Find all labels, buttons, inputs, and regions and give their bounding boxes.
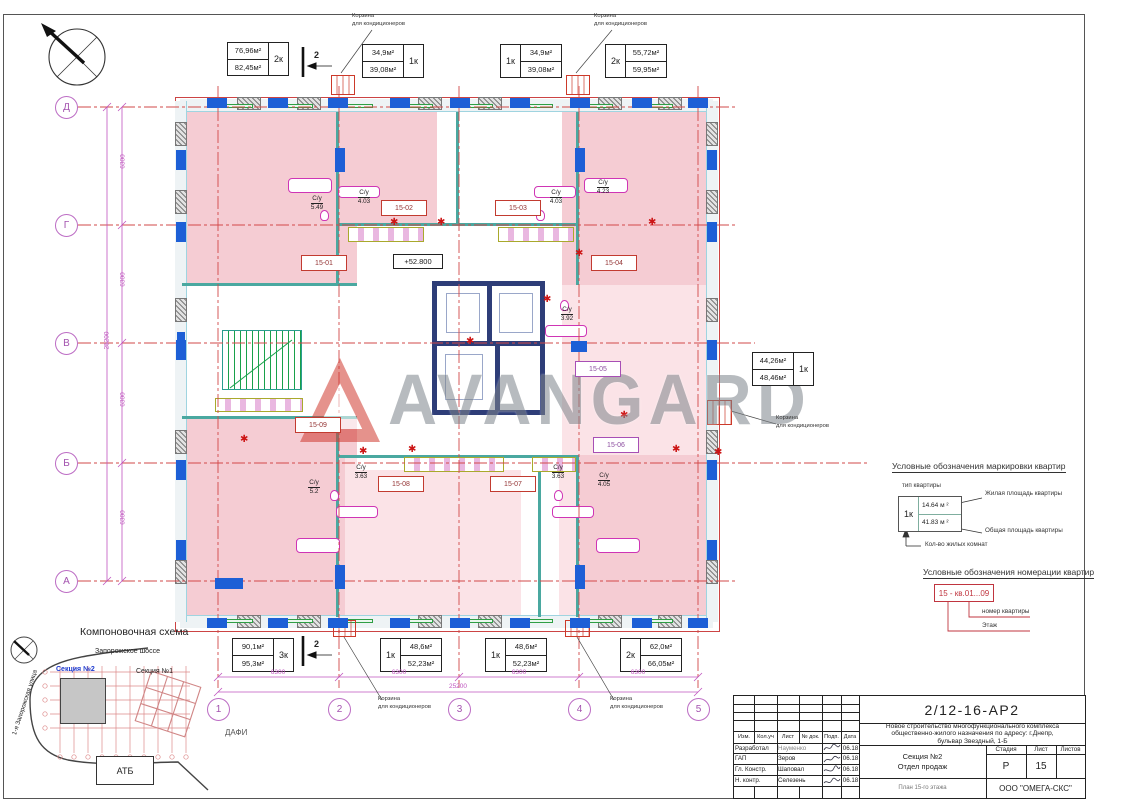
column: [570, 618, 590, 628]
apartment-number: 15-04: [591, 255, 637, 271]
bathtub: [296, 538, 340, 553]
party-wall: [456, 112, 459, 225]
apartment-number: 15-05: [575, 361, 621, 377]
tb-date: 06.18: [842, 743, 859, 753]
asterisk-mark: [672, 445, 680, 455]
ac-basket-label: Корзинадля кондиционеров: [776, 415, 829, 430]
legend-numbering-title: Условные обозначения номерации квартир: [923, 567, 1094, 579]
signature-icon: [823, 776, 841, 786]
party-wall: [576, 112, 579, 285]
column: [177, 332, 185, 354]
column: [268, 98, 288, 108]
area-tag: 48,6м²52,23м² 1к: [485, 638, 547, 672]
window-sill: [225, 104, 253, 108]
toilet: [320, 210, 329, 221]
tb-name: Зеров: [778, 753, 821, 764]
column: [575, 565, 585, 589]
axis-bubble-row: А: [55, 570, 78, 593]
wall-pier: [706, 560, 718, 584]
column: [176, 540, 186, 560]
bathroom-tag: С/у5.2: [300, 479, 328, 495]
apartment-number: 15-06: [593, 437, 639, 453]
column: [688, 618, 708, 628]
asterisk-mark: [575, 249, 583, 259]
column: [707, 540, 717, 560]
dimension: 6300: [502, 669, 536, 676]
tb-stage-value: Р: [986, 754, 1026, 778]
column: [328, 618, 348, 628]
axis-bubble-row: Д: [55, 96, 78, 119]
dimension: 6300: [120, 383, 127, 417]
bathroom-tag: С/у4.23: [589, 179, 617, 195]
apartment-number: 15-09: [295, 417, 341, 433]
legend-marking-title: Условные обозначения маркировки квартир: [892, 461, 1066, 473]
tb-header: № док.: [799, 731, 822, 743]
ac-basket: [707, 400, 732, 425]
legend-numbering-example: 15 - кв.01...09: [934, 584, 994, 602]
wall-pier: [175, 298, 187, 322]
column: [390, 618, 410, 628]
ac-basket: [331, 75, 355, 95]
elevation-mark: +52.800: [393, 254, 443, 269]
axis-bubble-row: Г: [55, 214, 78, 237]
column: [176, 222, 186, 242]
asterisk-mark: [648, 218, 656, 228]
tb-sheet-label: Лист: [1026, 745, 1056, 754]
legend-number-label: номер квартиры: [982, 608, 1029, 615]
axis-bubble-row: Б: [55, 452, 78, 475]
asterisk-mark: [714, 448, 722, 458]
wall-pier: [175, 122, 187, 146]
core-wall: [495, 346, 500, 410]
tb-stage-label: Стадия: [986, 745, 1026, 754]
asterisk-mark: [437, 218, 445, 228]
tb-date: 06.18: [842, 753, 859, 764]
dimension: 6300: [621, 669, 655, 676]
elevator-car: [446, 293, 480, 333]
toilet: [330, 490, 339, 501]
legend-rooms-label: Кол-во жилых комнат: [925, 541, 988, 548]
core-wall: [487, 286, 492, 341]
area-tag: 44,26м²48,46м² 1к: [752, 352, 814, 386]
area-tag: 90,1м²95,3м² 3к: [232, 638, 294, 672]
column: [390, 98, 410, 108]
bathroom-tag: С/у3.63: [347, 464, 375, 480]
wall-pier: [706, 190, 718, 214]
scheme-section2-block: [60, 678, 106, 724]
asterisk-mark: [390, 218, 398, 228]
toilet: [554, 490, 563, 501]
column: [707, 222, 717, 242]
ac-basket-label: Корзинадля кондиционеров: [352, 13, 405, 28]
asterisk-mark: [543, 295, 551, 305]
axis-bubble-col: 4: [568, 698, 591, 721]
section-mark-label: 2: [314, 50, 319, 60]
tb-company: ООО "ОМЕГА-СКС": [986, 778, 1085, 798]
column: [328, 98, 348, 108]
column: [176, 460, 186, 480]
tb-role: ГАП: [735, 753, 776, 764]
scheme-section2-label: Секция №2: [56, 666, 95, 673]
kitchen-unit: [498, 227, 574, 242]
bathtub: [596, 538, 640, 553]
drawing-sheet: AVANGARD 76,96м²82,45м² 2к 34,9м²39,08м²…: [0, 0, 1131, 800]
scheme-atb-box: АТБ: [96, 756, 154, 785]
legend-floor-label: Этаж: [982, 622, 997, 629]
signature-icon: [823, 743, 841, 753]
scheme-dafi-label: ДАФИ: [225, 728, 247, 737]
scheme-road-label: Запорожское шоссе: [95, 648, 160, 655]
column: [207, 98, 227, 108]
wall-pier: [175, 560, 187, 584]
elevator-car: [445, 354, 483, 400]
column: [688, 98, 708, 108]
asterisk-mark: [240, 435, 248, 445]
tb-doc-number: 2/12-16-АР2: [859, 696, 1085, 723]
tb-name: Селезень: [778, 775, 821, 786]
column: [215, 578, 243, 589]
tb-date: 06.18: [842, 764, 859, 775]
signature-icon: [823, 754, 841, 764]
tb-header: Изм.: [734, 731, 754, 743]
dimension-total: 25200: [104, 324, 111, 358]
bathroom-tag: С/у3.92: [553, 306, 581, 322]
column: [450, 98, 470, 108]
column: [707, 340, 717, 360]
column: [335, 565, 345, 589]
bathroom-tag: С/у4.03: [350, 189, 378, 205]
party-wall: [538, 470, 541, 617]
column: [176, 150, 186, 170]
bathroom-tag: С/у5.49: [303, 195, 331, 211]
elevator-core: [432, 281, 545, 415]
tb-role: Разработал: [735, 743, 776, 753]
scheme-section1-label: Секция №1: [136, 668, 173, 675]
dimension-total: 25200: [441, 683, 475, 690]
window-sill: [225, 619, 253, 623]
tb-header: Подп.: [822, 731, 841, 743]
axis-bubble-col: 5: [687, 698, 710, 721]
column: [575, 148, 585, 172]
tb-sheets-label: Листов: [1056, 745, 1085, 754]
column: [335, 148, 345, 172]
party-wall: [182, 283, 357, 286]
bathroom-tag: С/у4.03: [542, 189, 570, 205]
area-tag: 48,6м²52,23м² 1к: [380, 638, 442, 672]
kitchen-unit: [404, 457, 504, 472]
asterisk-mark: [466, 337, 474, 347]
area-tag: 55,72м²59,95м² 2к: [605, 44, 667, 78]
wall-pier: [175, 430, 187, 454]
apartment-number: 15-01: [301, 255, 347, 271]
ac-basket-label: Корзинадля кондиционеров: [378, 696, 431, 711]
tb-header: Лист: [777, 731, 799, 743]
party-wall: [337, 223, 579, 226]
column: [571, 341, 587, 352]
kitchen-unit: [215, 398, 303, 412]
apartment-number: 15-02: [381, 200, 427, 216]
column: [707, 150, 717, 170]
bathtub: [545, 325, 587, 337]
tb-header: Дата: [841, 731, 859, 743]
tb-plan-title: План 15-го этажа: [859, 778, 986, 798]
dimension: 6300: [120, 263, 127, 297]
legend-living-label: Жилая площадь квартиры: [985, 490, 1062, 497]
window-sill: [285, 619, 313, 623]
tb-section-cell: Секция №2 Отдел продаж: [859, 745, 986, 778]
axis-bubble-col: 2: [328, 698, 351, 721]
axis-bubble-row: В: [55, 332, 78, 355]
area-tag: 34,9м²39,08м² 1к: [500, 44, 562, 78]
column: [707, 460, 717, 480]
dimension: 6300: [120, 145, 127, 179]
area-tag: 34,9м²39,08м² 1к: [362, 44, 424, 78]
axis-bubble-col: 1: [207, 698, 230, 721]
dimension: 6300: [261, 669, 295, 676]
scheme-title: Компоновочная схема: [80, 626, 188, 638]
asterisk-mark: [359, 447, 367, 457]
legend-type-label: тип квартиры: [902, 482, 941, 489]
signature-icon: [823, 765, 841, 775]
ac-basket: [566, 75, 590, 95]
title-block: Изм. Кол.уч Лист № док. Подп. Дата Разра…: [733, 695, 1086, 799]
tb-header: Кол.уч: [754, 731, 777, 743]
tb-date: 06.18: [842, 775, 859, 786]
wall-pier: [706, 122, 718, 146]
dimension: 6300: [382, 669, 416, 676]
tb-name: Шаповал: [778, 764, 821, 775]
wall-pier: [706, 298, 718, 322]
tb-role: Н. контр.: [735, 775, 776, 786]
axis-bubble-col: 3: [448, 698, 471, 721]
column: [570, 98, 590, 108]
bathtub: [336, 506, 378, 518]
asterisk-mark: [408, 445, 416, 455]
legend-total-label: Общая площадь квартиры: [985, 527, 1063, 534]
party-wall: [576, 455, 579, 617]
apartment-number: 15-08: [378, 476, 424, 492]
column: [632, 618, 652, 628]
column: [510, 618, 530, 628]
kitchen-unit: [348, 227, 424, 242]
bathroom-tag: С/у4.05: [590, 472, 618, 488]
dimension: 6300: [120, 501, 127, 535]
column: [207, 618, 227, 628]
bathtub: [288, 178, 332, 193]
column: [450, 618, 470, 628]
tb-description: Новое строительство многофункционального…: [862, 724, 1083, 744]
window-sill: [345, 104, 373, 108]
apartment-number: 15-07: [490, 476, 536, 492]
tb-role: Гл. Констр.: [735, 764, 776, 775]
tb-name: Науменко: [778, 743, 821, 753]
asterisk-mark: [620, 411, 628, 421]
wall-pier: [175, 190, 187, 214]
tb-sheet-value: 15: [1026, 754, 1056, 778]
area-tag: 62,0м²66,05м² 2к: [620, 638, 682, 672]
window-sill: [285, 104, 313, 108]
ac-basket-label: Корзинадля кондиционеров: [610, 696, 663, 711]
column: [510, 98, 530, 108]
column: [268, 618, 288, 628]
apartment-number: 15-03: [495, 200, 541, 216]
staircase: [222, 330, 302, 390]
bathroom-tag: С/у3.63: [544, 464, 572, 480]
section-mark-label: 2: [314, 639, 319, 649]
area-tag: 76,96м²82,45м² 2к: [227, 42, 289, 76]
tb-sheets-value: [1056, 754, 1085, 778]
legend-marking-example: 1к 14.64 м ² 41.83 м ²: [898, 496, 962, 532]
ac-basket-label: Корзинадля кондиционеров: [594, 13, 647, 28]
bathtub: [552, 506, 594, 518]
core-wall: [437, 341, 540, 346]
column: [632, 98, 652, 108]
elevator-car: [499, 293, 533, 333]
